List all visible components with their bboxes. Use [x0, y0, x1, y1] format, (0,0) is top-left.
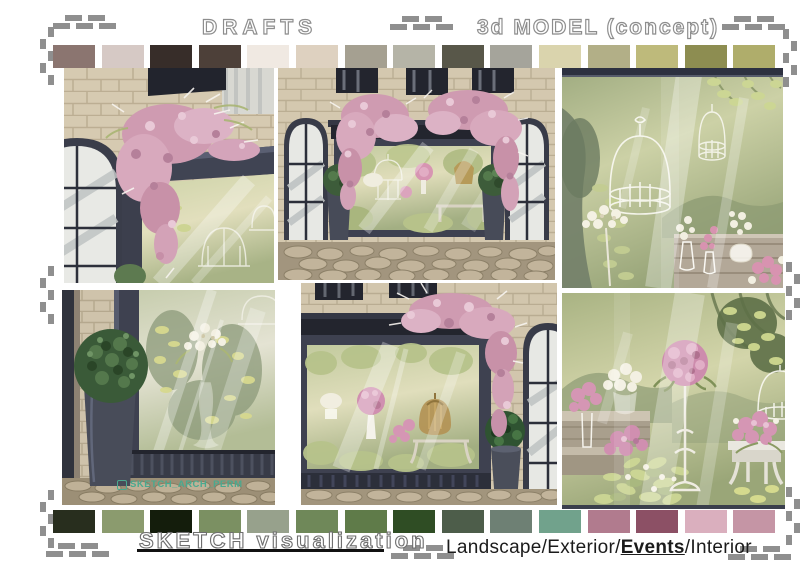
- color-swatch: [490, 45, 532, 68]
- stitch-mark: [40, 27, 54, 85]
- color-swatch: [685, 45, 727, 68]
- drafts-title: DRAFTS: [202, 17, 317, 39]
- color-swatch: [636, 45, 678, 68]
- stitch-mark: [53, 15, 119, 29]
- artwork-panel-storefront-right: [301, 283, 557, 505]
- color-swatch: [53, 45, 95, 68]
- color-swatch: [685, 510, 727, 533]
- artwork-panel-model-display: [562, 68, 783, 288]
- watermark-text: SKETCH_ARCH_PERM: [130, 479, 243, 490]
- color-swatch: [733, 45, 775, 68]
- category-list: Landscape/Exterior/Events/Interior: [446, 537, 752, 559]
- color-swatch: [539, 45, 581, 68]
- stitch-mark: [46, 543, 112, 557]
- color-swatch: [393, 45, 435, 68]
- top-palette: [53, 45, 775, 68]
- color-swatch: [588, 45, 630, 68]
- stitch-mark: [390, 16, 456, 30]
- color-swatch: [442, 45, 484, 68]
- color-swatch: [733, 510, 775, 533]
- category-suffix: /Interior: [685, 537, 752, 558]
- category-events: Events: [621, 537, 685, 558]
- stitch-mark: [722, 16, 788, 30]
- instagram-icon: [117, 480, 127, 490]
- artwork-panel-planter-closeup: SKETCH_ARCH_PERM: [62, 290, 275, 505]
- artwork-panel-draft-storefront: [278, 68, 555, 280]
- color-swatch: [345, 45, 387, 68]
- color-swatch: [296, 45, 338, 68]
- stitch-mark: [786, 487, 800, 545]
- stitch-mark: [783, 29, 797, 87]
- color-swatch: [102, 510, 144, 533]
- color-swatch: [102, 45, 144, 68]
- color-swatch: [490, 510, 532, 533]
- color-swatch: [247, 45, 289, 68]
- artwork-panel-interior-display: [562, 293, 785, 509]
- title-underline: [137, 549, 384, 552]
- color-swatch: [442, 510, 484, 533]
- presentation-sheet: DRAFTS 3d MODEL (concept): [0, 0, 800, 579]
- category-prefix: Landscape/Exterior/: [446, 537, 621, 558]
- color-swatch: [588, 510, 630, 533]
- color-swatch: [53, 510, 95, 533]
- artwork-panel-draft-closeup: [64, 68, 274, 283]
- color-swatch: [150, 45, 192, 68]
- model-concept-title: 3d MODEL (concept): [477, 17, 719, 39]
- color-swatch: [539, 510, 581, 533]
- stitch-mark: [40, 266, 54, 324]
- stitch-mark: [40, 490, 54, 548]
- color-swatch: [636, 510, 678, 533]
- stitch-mark: [786, 262, 800, 320]
- color-swatch: [199, 45, 241, 68]
- watermark: SKETCH_ARCH_PERM: [117, 479, 243, 490]
